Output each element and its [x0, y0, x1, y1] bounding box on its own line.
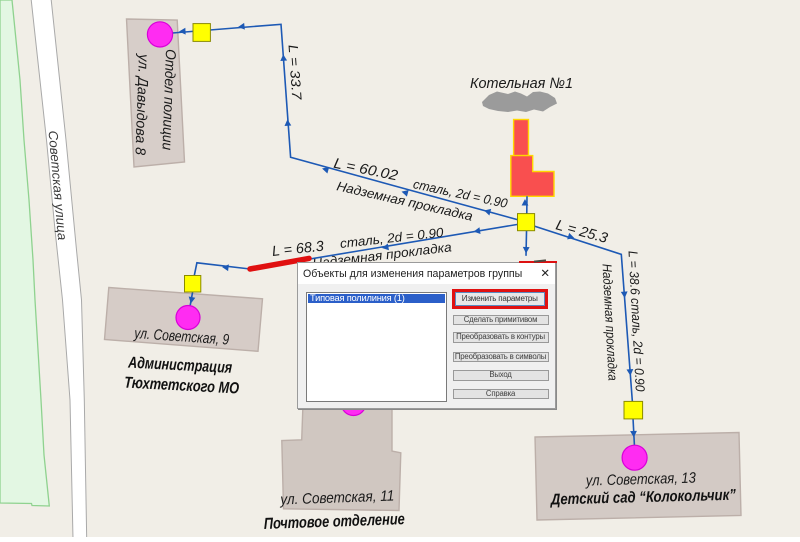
svg-text:Котельная №1: Котельная №1 — [470, 75, 573, 92]
svg-text:ул. Советская, 13: ул. Советская, 13 — [585, 470, 697, 490]
